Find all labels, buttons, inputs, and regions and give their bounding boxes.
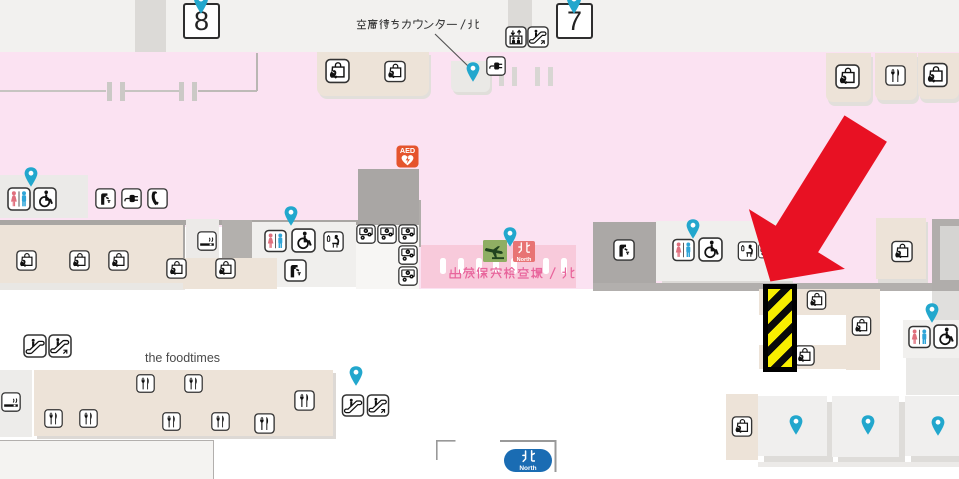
svg-text:AED: AED (400, 146, 415, 155)
